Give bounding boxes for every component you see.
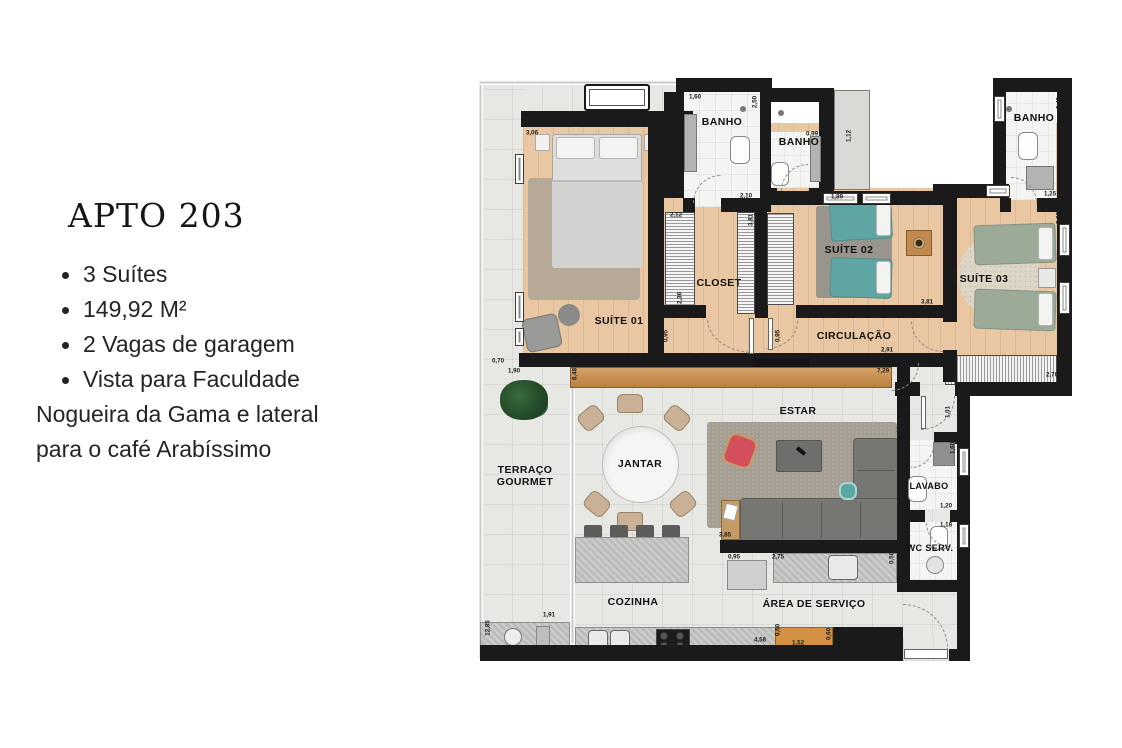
wall [950, 510, 957, 522]
floor-plan: BANHOBANHOBANHOSUÍTE 01CLOSETSUÍTE 02SUÍ… [478, 78, 1072, 672]
dimension-label: 0,60 [775, 624, 782, 636]
kitchen-island [575, 537, 689, 583]
dimension-label: 1,60 [670, 182, 677, 194]
wall [833, 627, 903, 661]
sofa [740, 498, 900, 542]
window [959, 448, 969, 476]
wall [720, 540, 897, 553]
window [1059, 224, 1070, 256]
room-label: WC SERV. [907, 543, 954, 553]
feature-item: 149,92 M² [36, 292, 358, 327]
dimension-label: 1,30 [905, 528, 912, 540]
teal-pouf [839, 482, 857, 500]
window [515, 154, 524, 184]
service-sink [828, 555, 858, 580]
wall [943, 198, 957, 322]
wall [897, 580, 970, 592]
tv [753, 359, 809, 367]
bullet-icon [62, 342, 69, 349]
room-label: BANHO [779, 136, 820, 148]
wall [676, 78, 772, 92]
room-label: CLOSET [697, 277, 742, 289]
apartment-title: APTO 203 [68, 196, 358, 235]
dimension-label: 3,06 [526, 130, 538, 137]
dimension-label: 1,89 [831, 194, 843, 201]
window [515, 292, 524, 322]
dimension-label: 2,70 [1046, 372, 1058, 379]
dimension-label: 3,81 [669, 311, 681, 318]
wall [955, 382, 1070, 396]
suite02-wardrobe [767, 213, 794, 305]
dimension-label: 0,95 [728, 554, 740, 561]
room-label: COZINHA [608, 596, 659, 608]
suite03-pillow [1038, 293, 1053, 326]
dimension-label: 1,60 [950, 442, 957, 454]
terrace-rail-left [478, 80, 483, 660]
wall [519, 353, 897, 367]
dimension-label: 6,48 [572, 368, 579, 380]
banho3-toilet [1018, 132, 1038, 160]
bullet-icon [62, 377, 69, 384]
room-label: JANTAR [618, 458, 662, 470]
door-leaf [904, 649, 948, 659]
room-label: ESTAR [780, 405, 817, 417]
feature-list: 3 Suítes149,92 M²2 Vagas de garagemVista… [36, 257, 358, 467]
wall [755, 198, 767, 305]
shower-head [740, 106, 746, 112]
suite02-pillow [876, 261, 891, 294]
bullet-icon [62, 307, 69, 314]
dimension-label: 4,59 [946, 363, 953, 375]
dining-chair [617, 394, 643, 413]
suite03-pillow [1038, 227, 1053, 260]
door-leaf [921, 396, 926, 429]
wall [949, 649, 970, 661]
dimension-label: 2,12 [670, 212, 682, 219]
dimension-label: 4,58 [754, 637, 766, 644]
dimension-label: 3,81 [921, 299, 933, 306]
feature-item: 2 Vagas de garagem [36, 327, 358, 362]
dimension-label: 3,85 [719, 532, 731, 539]
dimension-label: 2,35 [763, 170, 770, 182]
terrace-glass-divider [570, 360, 575, 645]
window [862, 193, 891, 204]
door-leaf [749, 318, 754, 354]
window [986, 185, 1010, 197]
dimension-label: 0,95 [663, 330, 670, 342]
info-panel: APTO 203 3 Suítes149,92 M²2 Vagas de gar… [36, 196, 358, 467]
plant [500, 380, 548, 420]
dimension-label: 1,25 [1044, 191, 1056, 198]
dimension-label: 12,85 [485, 620, 492, 636]
wc-shower [926, 556, 944, 574]
dimension-label: 1,18 [940, 522, 952, 529]
room-label: BANHO [1014, 112, 1055, 124]
page: APTO 203 3 Suítes149,92 M²2 Vagas de gar… [0, 0, 1122, 748]
dimension-label: 0,50 [889, 552, 896, 564]
window [994, 96, 1005, 122]
dimension-label: 1,52 [792, 640, 804, 647]
feature-item: 3 Suítes [36, 257, 358, 292]
dimension-label: 1,20 [940, 503, 952, 510]
wall [796, 305, 943, 318]
room-label: SUÍTE 01 [595, 315, 644, 327]
dimension-label: 1,90 [508, 368, 520, 375]
dimension-label: 0,95 [775, 330, 782, 342]
banho1-toilet [730, 136, 750, 164]
wall [480, 645, 833, 661]
suite01-nightstand [535, 134, 550, 151]
dimension-label: 0,50 [667, 135, 679, 142]
dimension-label: 3,81 [748, 214, 755, 226]
dimension-label: 2,10 [740, 193, 752, 200]
coffee-table [776, 440, 822, 472]
dimension-label: 1,91 [543, 612, 555, 619]
wall [648, 111, 664, 355]
room-label: ÁREA DE SERVIÇO [763, 598, 866, 610]
door-leaf [768, 318, 773, 350]
dimension-label: 0,60 [826, 628, 833, 640]
dimension-label: 2,36 [677, 292, 684, 304]
suite03-wardrobe [945, 355, 1057, 385]
dimension-label: 2,91 [881, 347, 893, 354]
dimension-label: 1,01 [945, 406, 952, 418]
wall [768, 188, 777, 201]
closet-wardrobe [737, 212, 755, 314]
bullet-icon [62, 272, 69, 279]
shower-head [778, 110, 784, 116]
shower-head [1006, 106, 1012, 112]
room-label: LAVABO [909, 481, 948, 491]
dimension-label: 7,29 [877, 368, 889, 375]
banho1-vanity [684, 114, 697, 172]
window [959, 524, 969, 548]
wall [1000, 198, 1011, 212]
room-label: SUÍTE 02 [825, 244, 874, 256]
dimension-label: 1,12 [846, 130, 853, 142]
washer [727, 560, 767, 590]
dimension-label: 3,93 [1056, 212, 1063, 224]
window [1059, 282, 1070, 314]
wall [903, 510, 925, 522]
suite01-pillow [556, 137, 595, 159]
suite02-lamp [913, 237, 925, 249]
wall [755, 305, 768, 318]
wall [1037, 198, 1058, 212]
window [515, 328, 524, 346]
terrace-sink [504, 628, 522, 646]
wall [763, 191, 953, 205]
room-label: TERRAÇO GOURMET [479, 464, 571, 488]
feature-item: Vista para Faculdade Nogueira da Gama e … [36, 362, 358, 467]
suite01-pouf [558, 304, 580, 326]
room-label: CIRCULAÇÃO [817, 330, 892, 342]
sideboard [570, 367, 892, 388]
dimension-label: 0,99 [806, 131, 818, 138]
dimension-label: 1,60 [932, 353, 939, 365]
exterior-gap [870, 78, 994, 188]
dimension-label: 0,90 [770, 94, 782, 101]
dimension-label: 0,70 [492, 358, 504, 365]
dimension-label: 2,40 [1056, 97, 1063, 109]
suite01-blanket [552, 180, 642, 268]
dimension-label: 1,51 [896, 427, 908, 434]
dimension-label: 1,60 [689, 94, 701, 101]
suite01-pillow [599, 137, 638, 159]
wall [760, 92, 771, 198]
window [584, 84, 650, 111]
room-label: BANHO [702, 116, 743, 128]
suite02-pillow [876, 203, 891, 236]
room-label: SUÍTE 03 [960, 273, 1009, 285]
dimension-label: 2,75 [772, 554, 784, 561]
suite03-nightstand [1038, 268, 1056, 288]
dimension-label: 2,50 [752, 96, 759, 108]
